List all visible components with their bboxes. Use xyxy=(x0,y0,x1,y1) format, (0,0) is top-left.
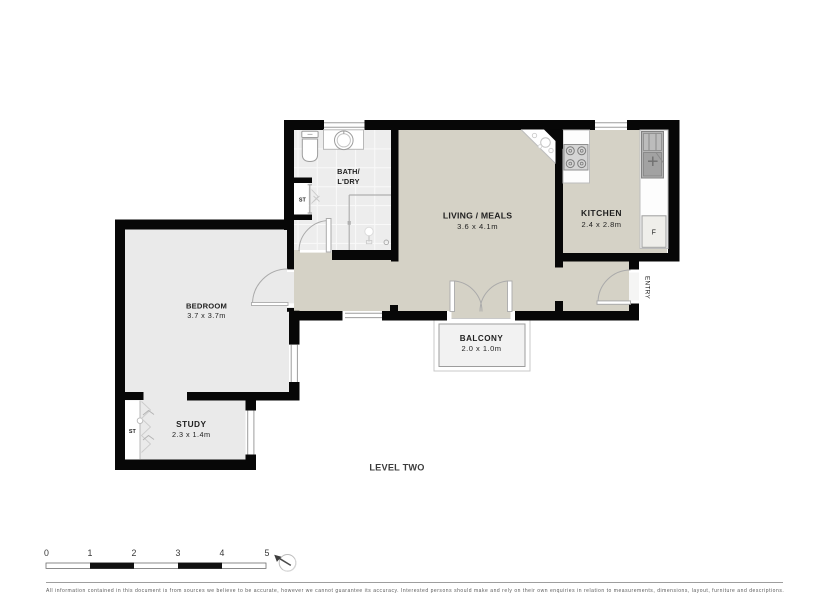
svg-text:3.7 x 3.7m: 3.7 x 3.7m xyxy=(187,311,226,320)
svg-text:3.6 x 4.1m: 3.6 x 4.1m xyxy=(457,222,498,231)
svg-text:BALCONY: BALCONY xyxy=(460,334,504,343)
svg-text:2.4 x 2.8m: 2.4 x 2.8m xyxy=(581,220,621,229)
svg-text:2: 2 xyxy=(132,548,137,558)
svg-text:BATH/: BATH/ xyxy=(337,167,360,176)
svg-text:ENTRY: ENTRY xyxy=(644,276,651,299)
svg-text:BEDROOM: BEDROOM xyxy=(186,302,227,311)
svg-text:STUDY: STUDY xyxy=(176,419,206,429)
svg-text:5: 5 xyxy=(265,548,270,558)
svg-text:LIVING / MEALS: LIVING / MEALS xyxy=(443,211,512,221)
svg-text:2.3 x 1.4m: 2.3 x 1.4m xyxy=(172,430,211,439)
svg-text:ST: ST xyxy=(129,429,137,435)
svg-text:F: F xyxy=(652,230,656,237)
svg-text:4: 4 xyxy=(220,548,225,558)
svg-text:0: 0 xyxy=(44,548,49,558)
svg-text:1: 1 xyxy=(88,548,93,558)
svg-text:KITCHEN: KITCHEN xyxy=(581,208,622,218)
svg-text:All information contained in t: All information contained in this docume… xyxy=(46,588,784,594)
svg-text:3: 3 xyxy=(176,548,181,558)
svg-text:ST: ST xyxy=(299,197,307,203)
svg-text:LEVEL TWO: LEVEL TWO xyxy=(369,463,424,473)
svg-text:L'DRY: L'DRY xyxy=(337,177,359,186)
svg-text:2.0 x 1.0m: 2.0 x 1.0m xyxy=(461,344,501,353)
